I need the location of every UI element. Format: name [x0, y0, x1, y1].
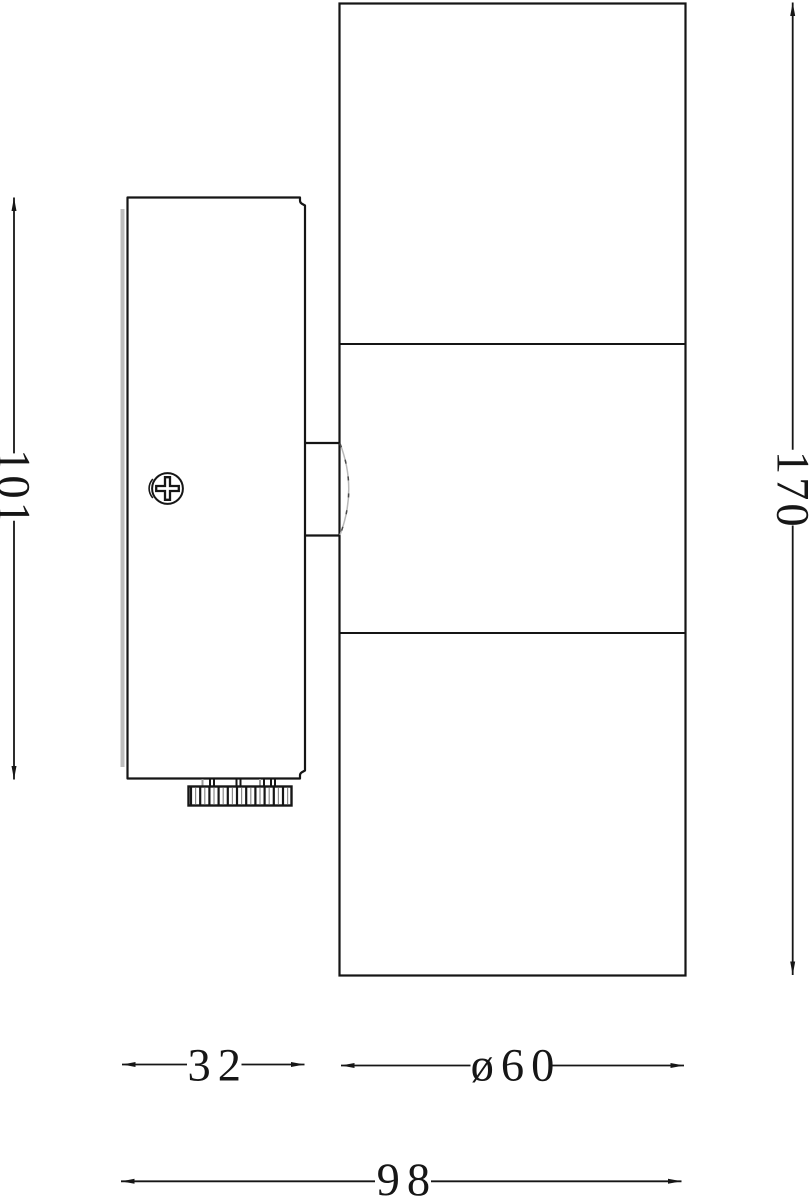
- svg-text:170: 170: [766, 451, 811, 530]
- svg-text:101: 101: [0, 449, 39, 528]
- svg-text:98: 98: [377, 1155, 438, 1200]
- svg-text:ø60: ø60: [471, 1040, 562, 1091]
- svg-text:32: 32: [187, 1040, 248, 1091]
